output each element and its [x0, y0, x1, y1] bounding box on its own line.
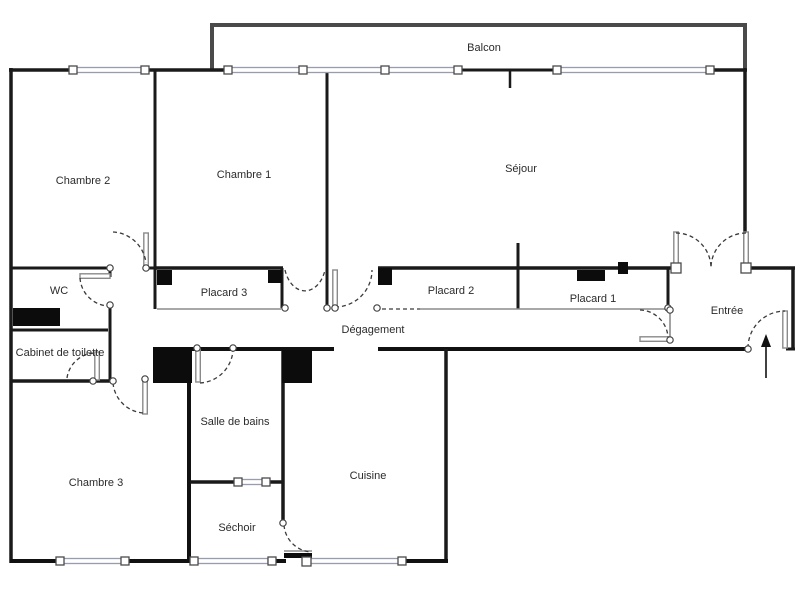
room-label-wc: WC: [50, 285, 68, 297]
window-end-squares: [56, 66, 751, 566]
room-label-degagement: Dégagement: [342, 324, 405, 336]
double-door-left-leaf: [674, 232, 679, 267]
sejour-door-arc: [335, 270, 372, 307]
salle-de-bains-door-arc: [200, 350, 233, 383]
room-label-cabinet-de-toilette: Cabinet de toilette: [16, 347, 105, 359]
double-door-right-leaf: [744, 232, 749, 267]
chambre3-door-leaf: [143, 379, 148, 414]
room-label-placard1: Placard 1: [570, 293, 616, 305]
chambre2-door-leaf: [144, 233, 149, 268]
entree-door-arc: [640, 310, 668, 337]
room-label-chambre1: Chambre 1: [217, 169, 271, 181]
salle-de-bains-door-leaf: [196, 349, 201, 382]
sechoir-door-arc: [284, 525, 311, 552]
floor-plan-drawing: Balcon Chambre 2 Chambre 1 Séjour WC Pla…: [0, 0, 800, 600]
windows: [62, 68, 710, 564]
room-label-entree: Entrée: [711, 305, 743, 317]
wc-door-arc: [80, 278, 108, 306]
floor-plan: Balcon Chambre 2 Chambre 1 Séjour WC Pla…: [0, 0, 800, 600]
entree-door-leaf: [640, 337, 670, 342]
room-label-placard3: Placard 3: [201, 287, 247, 299]
entrance-arrow-icon: [761, 334, 771, 378]
walls: [9, 68, 795, 563]
entrance-door-leaf: [783, 311, 788, 348]
wc-door-leaf: [80, 274, 110, 279]
sejour-door-leaf: [333, 270, 338, 307]
room-label-chambre3: Chambre 3: [69, 477, 123, 489]
room-label-sejour: Séjour: [505, 163, 537, 175]
room-labels: Balcon Chambre 2 Chambre 1 Séjour WC Pla…: [16, 42, 744, 534]
room-label-placard2: Placard 2: [428, 285, 474, 297]
room-label-salle-de-bains: Salle de bains: [200, 416, 270, 428]
room-label-chambre2: Chambre 2: [56, 175, 110, 187]
chambre1-door-arc: [285, 270, 325, 291]
door-swing-arcs: [67, 232, 785, 552]
chambre3-door-arc: [113, 383, 143, 413]
room-label-cuisine: Cuisine: [350, 470, 387, 482]
door-leaves: [80, 232, 787, 414]
chambre2-door-arc: [113, 232, 146, 263]
room-label-sechoir: Séchoir: [218, 522, 256, 534]
room-label-balcon: Balcon: [467, 42, 501, 54]
wall-masses: [13, 262, 628, 558]
